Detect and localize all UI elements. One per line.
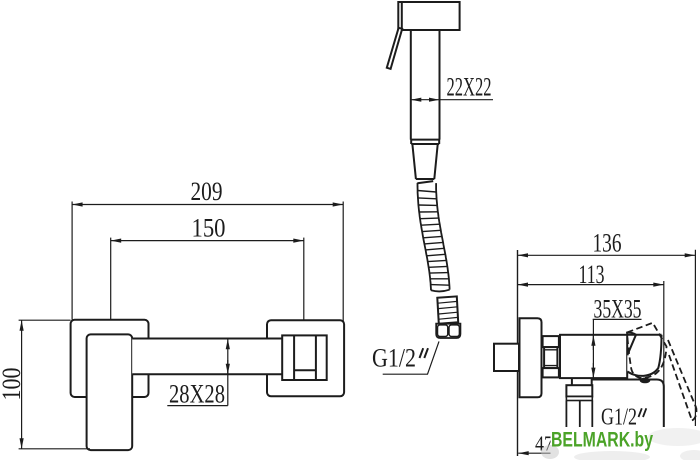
svg-text:22X22: 22X22 (447, 73, 492, 102)
svg-text:G1/2: G1/2 (372, 344, 416, 373)
svg-text:35X35: 35X35 (594, 295, 642, 324)
svg-text:209: 209 (191, 177, 223, 206)
svg-text:BELMARK.by: BELMARK.by (551, 427, 653, 451)
svg-text:113: 113 (579, 260, 605, 289)
svg-text:28X28: 28X28 (169, 380, 225, 409)
svg-text:136: 136 (593, 229, 622, 258)
svg-text:150: 150 (192, 214, 226, 243)
svg-text:100: 100 (0, 368, 26, 401)
